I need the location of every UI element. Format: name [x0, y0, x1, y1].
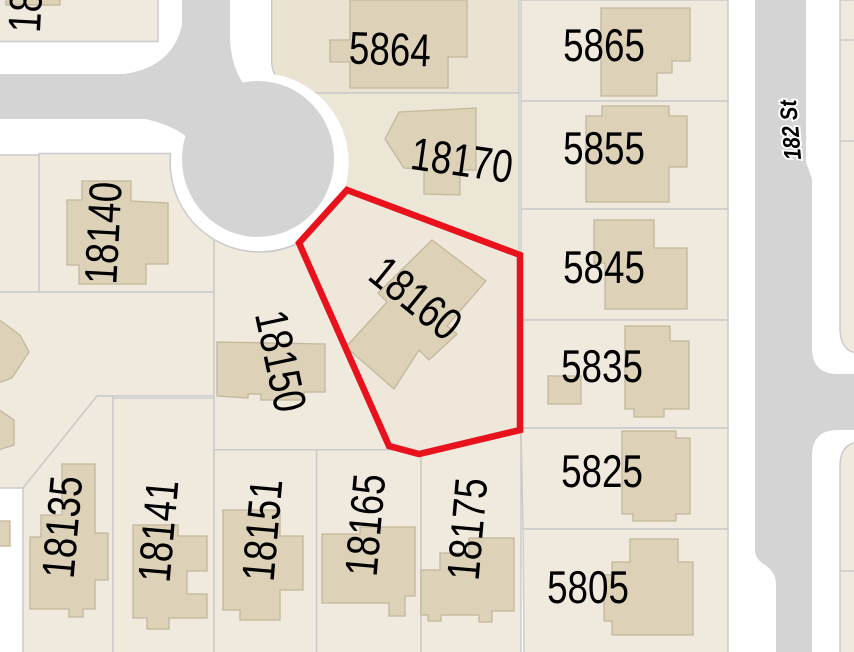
svg-text:18: 18 [0, 0, 52, 34]
svg-text:5845: 5845 [563, 241, 645, 293]
svg-text:18135: 18135 [32, 474, 93, 580]
svg-text:5855: 5855 [563, 122, 645, 174]
svg-text:5835: 5835 [561, 340, 643, 392]
svg-text:18165: 18165 [335, 472, 396, 578]
svg-text:182 St: 182 St [775, 98, 807, 161]
svg-text:5805: 5805 [547, 561, 629, 613]
svg-text:18175: 18175 [437, 476, 498, 582]
svg-text:5864: 5864 [348, 22, 432, 77]
svg-text:5825: 5825 [561, 445, 643, 497]
svg-text:18140: 18140 [74, 181, 131, 286]
svg-text:5865: 5865 [563, 19, 645, 71]
svg-text:18141: 18141 [128, 478, 189, 584]
svg-text:18151: 18151 [232, 477, 293, 583]
